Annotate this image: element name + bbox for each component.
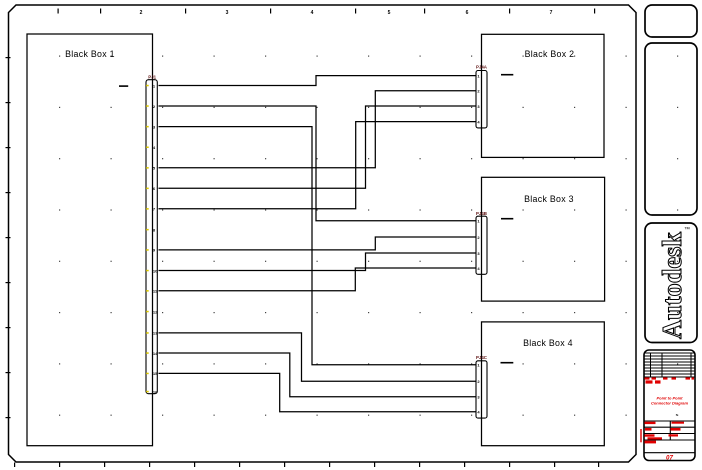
svg-text:2: 2 [140,10,143,16]
svg-text:PJ1: PJ1 [148,75,156,80]
svg-text:PJ4B: PJ4B [476,211,487,216]
svg-text:Black Box 1: Black Box 1 [65,49,115,59]
svg-text:13: 13 [153,331,158,336]
svg-text:Connector Diagram: Connector Diagram [651,400,689,405]
svg-text:16: 16 [153,389,158,394]
svg-text:PJ4A: PJ4A [476,64,488,69]
svg-text:4: 4 [311,10,314,16]
svg-text:10: 10 [153,268,158,273]
svg-text:14: 14 [153,351,158,356]
svg-text:™: ™ [684,226,690,233]
svg-text:3: 3 [226,10,229,16]
svg-text:07: 07 [666,455,673,462]
svg-text:Black Box 4: Black Box 4 [523,338,573,348]
svg-text:15: 15 [153,371,158,376]
svg-text:7: 7 [550,10,553,16]
svg-text:Black Box 3: Black Box 3 [524,194,574,204]
svg-text:5: 5 [388,10,391,16]
svg-text:Black Box 2: Black Box 2 [525,49,575,59]
svg-text:6: 6 [466,10,469,16]
svg-text:PJ4C: PJ4C [476,355,488,360]
svg-text:Autodesk: Autodesk [657,232,687,339]
svg-text:12: 12 [153,309,158,314]
